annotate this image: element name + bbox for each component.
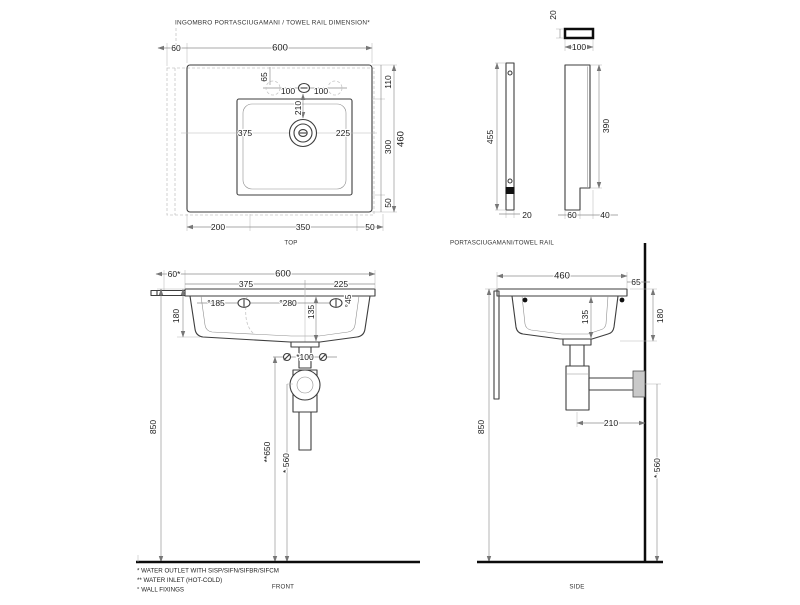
dim-rail-thickness-bottom: 20: [499, 210, 532, 220]
dim-bottom-right: 50: [365, 222, 375, 232]
dim-bracket-length-value: 390: [601, 119, 611, 133]
dim-front-drain-left: 375: [239, 279, 253, 289]
technical-drawing-sheet: INGOMBRO PORTASCIUGAMANI / TOWEL RAIL DI…: [0, 0, 800, 600]
towel-rail-envelope-dashed: [167, 68, 374, 215]
dim-front-drain-right: 225: [334, 279, 348, 289]
dim-top-width: 60 600: [158, 43, 372, 67]
dim-rim-height-side: 850: [476, 420, 486, 434]
dim-rail-thickness: 20: [548, 10, 558, 20]
dim-rim-height-front: 850: [148, 420, 158, 434]
dim-rail-offset: 60: [171, 43, 181, 53]
dim-side-rim-height: 850: [476, 289, 498, 562]
dim-outlet-height-front: * 560: [281, 453, 291, 473]
towel-rail-side: [494, 291, 499, 399]
dim-front-width: 600: [275, 269, 291, 280]
fixing-bolt-front-dot: [523, 298, 528, 303]
dim-top-bottom: 200 350 50: [187, 214, 383, 232]
dim-front-rail-offset: 60*: [168, 269, 181, 279]
dim-depth-total: 460: [396, 131, 407, 147]
dim-bowl-depth-front: 135: [306, 305, 316, 319]
dim-outlet-height-side: * 560: [652, 458, 662, 478]
footnote-inlet: ** WATER INLET (HOT-COLD): [137, 577, 222, 584]
dim-inlet-height: **650: [262, 441, 272, 462]
footnote-outlet: * WATER OUTLET WITH SISP/SIFN/SIFBR/SIFC…: [137, 568, 279, 575]
dim-fix-left: °185: [207, 298, 225, 308]
dim-back-gap: 65: [631, 277, 641, 287]
dim-tap-to-edge: 65: [259, 72, 269, 82]
dim-side-top: 460 65: [497, 271, 650, 289]
dim-edge-to-bowl: 110: [383, 75, 393, 89]
dim-drain-from-left: 375: [238, 128, 252, 138]
rail-cross-section: [565, 29, 593, 38]
dim-bracket-notch: 40: [600, 210, 610, 220]
dim-apron-height-front: 180: [171, 309, 181, 323]
dim-bowl-depth: 300: [383, 140, 393, 154]
dim-inlet-spacing-value: *100: [296, 352, 314, 362]
dim-rail-length-value: 455: [485, 130, 495, 144]
dim-inlet-spacing: *100: [273, 352, 337, 362]
rail-bracket-profile: [565, 65, 590, 210]
dim-tap-position: 65 100 100 210: [259, 67, 328, 118]
dim-rail-section-width: 100: [565, 40, 593, 52]
dim-trap-to-wall: 210: [577, 412, 645, 428]
dim-rail-length: 455: [485, 63, 505, 210]
towel-rail-view-label: PORTASCIUGAMANI/TOWEL RAIL: [450, 240, 554, 247]
dim-depth-total-side: 460: [554, 271, 570, 282]
front-view: °185 °280 °45 135 60* 600 375 225 180: [136, 269, 420, 591]
dim-tap-to-drain: 210: [293, 101, 303, 115]
dim-front-heights: 180 850: [148, 289, 200, 562]
drain-symbol-top: [290, 120, 317, 147]
dim-rail-width: 100: [572, 42, 586, 52]
top-view: INGOMBRO PORTASCIUGAMANI / TOWEL RAIL DI…: [158, 20, 407, 247]
dim-bowl-depth-side: 135: [580, 310, 590, 324]
drawing-title: INGOMBRO PORTASCIUGAMANI / TOWEL RAIL DI…: [175, 20, 370, 27]
side-view-label: SIDE: [569, 584, 584, 591]
dim-side-depths: 135 180: [580, 289, 665, 341]
fixing-bolt-back-dot: [620, 298, 625, 303]
dim-bracket-foot: 60: [567, 210, 577, 220]
bowl-inner-top: [243, 104, 346, 189]
dim-front-bowl-depth: 135: [306, 297, 316, 341]
basin-inner-side: [522, 296, 608, 334]
dim-rail-thickness-bottom-value: 20: [522, 210, 532, 220]
dim-tap-right: 100: [314, 86, 328, 96]
towel-rail-front: [151, 291, 185, 296]
dim-trap-to-wall-value: 210: [604, 418, 618, 428]
drain-trap-side: [563, 339, 645, 410]
dim-bowl-to-front: 50: [383, 198, 393, 208]
tap-hole-symbol: [263, 81, 347, 95]
dim-bottom-left: 200: [211, 222, 225, 232]
basin-body-side: [512, 296, 618, 339]
dim-tap-left: 100: [281, 86, 295, 96]
dim-inlet-outlet-heights: **650 * 560: [262, 357, 293, 562]
towel-rail-view: 20 100 455 20: [450, 10, 618, 246]
dim-apron-height-side: 180: [655, 309, 665, 323]
dim-width-total: 600: [272, 43, 288, 54]
rail-joint: [506, 187, 515, 194]
front-view-label: FRONT: [272, 584, 294, 591]
dim-rail-thickness-top: 20: [548, 10, 564, 38]
side-view: 460 65 135 180 850 210: [476, 243, 665, 591]
wall-flange: [633, 371, 645, 397]
footnotes: * WATER OUTLET WITH SISP/SIFN/SIFBR/SIFC…: [137, 568, 279, 594]
footnote-fixings: ° WALL FIXINGS: [137, 587, 184, 594]
waste-pipe-front: [299, 412, 311, 450]
dim-bottom-mid: 350: [296, 222, 310, 232]
dim-drain-from-right: 225: [336, 128, 350, 138]
waste-pipe-side: [589, 378, 635, 390]
basin-outline-top: [187, 65, 372, 212]
washbasin-dimension-drawing: INGOMBRO PORTASCIUGAMANI / TOWEL RAIL DI…: [0, 0, 800, 600]
dim-outlet-height-side-group: * 560: [645, 384, 662, 562]
dim-top-depths: 110 300 50 460: [372, 65, 407, 212]
basin-slab-side: [497, 289, 627, 296]
dim-bracket-length: 390: [591, 65, 611, 188]
dim-fix-spacing: °280: [279, 298, 297, 308]
rail-front-elevation: [506, 63, 515, 210]
top-view-label: TOP: [284, 240, 297, 247]
dim-fix-diameter: °45: [343, 294, 353, 307]
